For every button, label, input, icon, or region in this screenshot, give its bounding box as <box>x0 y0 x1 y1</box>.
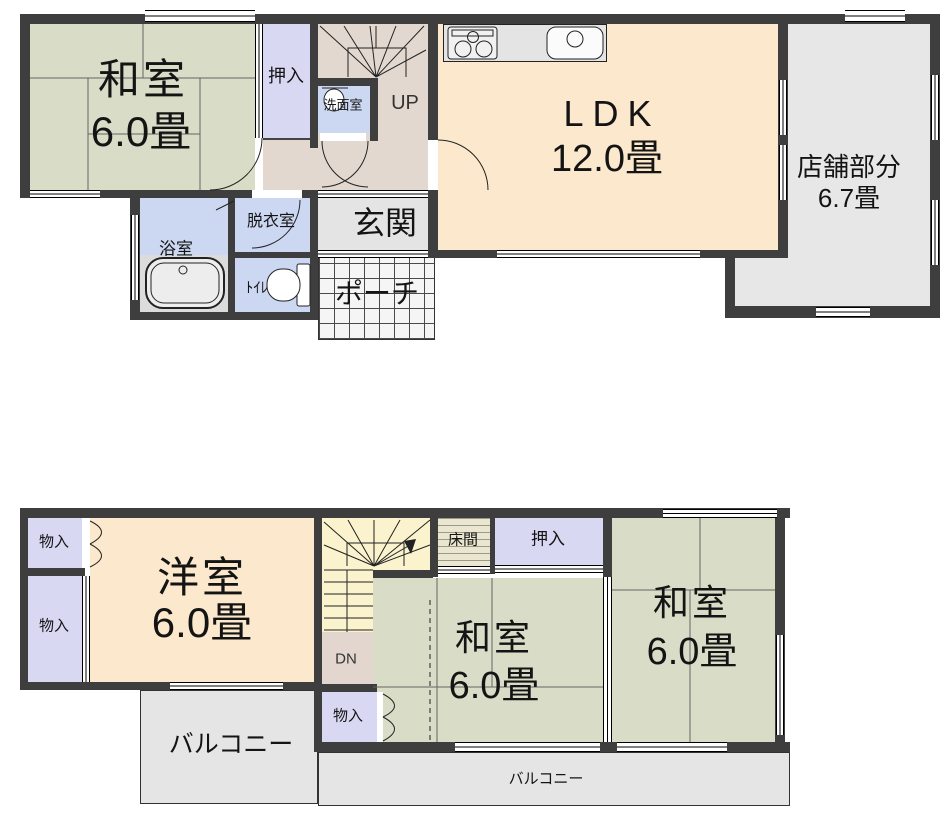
window <box>30 190 100 198</box>
label-oshiire-2f: 押入 <box>531 531 565 548</box>
label-balcony-bottom: バルコニー <box>509 772 584 787</box>
label-datsuishitsu: 脱衣室 <box>247 214 295 230</box>
wall <box>370 86 378 141</box>
window <box>170 682 283 690</box>
wall <box>314 508 322 752</box>
label-yoshitsu-name: 洋室 <box>157 557 247 599</box>
bath-tile-area <box>140 255 228 312</box>
door-opening <box>320 133 366 141</box>
wall <box>314 684 377 692</box>
stair-treads-2f <box>322 570 373 632</box>
sliding-door <box>318 190 428 198</box>
wall <box>778 14 788 258</box>
wall <box>310 190 318 320</box>
label-tokonoma: 床間 <box>448 533 478 548</box>
wall <box>130 312 318 320</box>
wall <box>20 14 30 198</box>
label-genkan: 玄関 <box>353 207 417 239</box>
room-tenpo-lower <box>735 258 930 306</box>
window <box>455 742 600 752</box>
stairwell-2f <box>322 518 433 570</box>
fusuma-door <box>495 565 603 573</box>
wall <box>603 508 612 577</box>
label-yokushitsu: 浴室 <box>159 241 193 258</box>
floor-plan-canvas: 和室 6.0畳 押入 洗面室 UP LDK 12.0畳 店舗部分 6.7畳 浴室… <box>0 0 952 829</box>
label-washitsu-right-size: 6.0畳 <box>647 633 738 671</box>
window <box>131 215 139 300</box>
label-washitsu-1f-size: 6.0畳 <box>91 111 191 153</box>
wall <box>310 78 378 86</box>
wall <box>930 14 940 318</box>
label-ldk-size: 12.0畳 <box>551 140 663 178</box>
room-washitsu-1f <box>30 24 255 190</box>
door-opening <box>255 138 263 190</box>
label-washitsu-center-size: 6.0畳 <box>449 667 540 705</box>
label-monoire-lower: 物入 <box>333 709 363 724</box>
fusuma-door <box>255 24 263 138</box>
wall <box>20 508 28 690</box>
door-opening <box>82 518 90 568</box>
label-tenpo-size: 6.7畳 <box>818 185 880 211</box>
wall <box>235 252 310 258</box>
entrance-door <box>318 250 428 258</box>
label-senmenshitsu: 洗面室 <box>323 99 362 112</box>
wall <box>20 568 85 576</box>
label-ldk-name: LDK <box>563 96 660 132</box>
label-oshiire-1f: 押入 <box>268 67 304 85</box>
window <box>663 509 777 518</box>
room-tenpo-upper <box>788 24 930 258</box>
label-balcony-left: バルコニー <box>169 733 294 758</box>
wall <box>430 508 438 577</box>
window <box>845 10 905 22</box>
label-monoire-top: 物入 <box>39 535 69 550</box>
sliding-door <box>82 576 90 682</box>
window <box>816 307 870 317</box>
window <box>931 200 939 265</box>
wall <box>428 14 438 258</box>
kitchen-counter <box>443 24 607 62</box>
wall <box>373 570 433 578</box>
door-opening <box>252 190 302 198</box>
door-opening <box>377 692 383 742</box>
label-porch: ポーチ <box>335 280 419 308</box>
label-tenpo-name: 店舗部分 <box>797 154 901 180</box>
wall <box>310 24 318 148</box>
window <box>931 75 939 140</box>
label-washitsu-right-name: 和室 <box>653 585 731 621</box>
window <box>617 742 727 752</box>
window <box>776 635 784 735</box>
label-toilet: ﾄｲﾚ <box>246 281 269 296</box>
window <box>145 10 255 22</box>
wall <box>228 198 235 312</box>
label-yoshitsu-size: 6.0畳 <box>152 602 252 644</box>
fusuma-door <box>603 577 612 742</box>
window <box>779 80 787 135</box>
window <box>497 250 700 258</box>
room-washitsu-right <box>612 518 775 742</box>
label-stairs-dn: DN <box>335 652 357 667</box>
label-monoire-left: 物入 <box>39 619 69 634</box>
room-washitsu-center <box>373 578 603 742</box>
door-opening <box>428 140 438 190</box>
sliding-door <box>438 566 490 574</box>
label-washitsu-1f-name: 和室 <box>98 59 188 101</box>
label-washitsu-center-name: 和室 <box>455 620 533 656</box>
label-stairs-up: UP <box>391 93 419 113</box>
window <box>779 145 787 200</box>
